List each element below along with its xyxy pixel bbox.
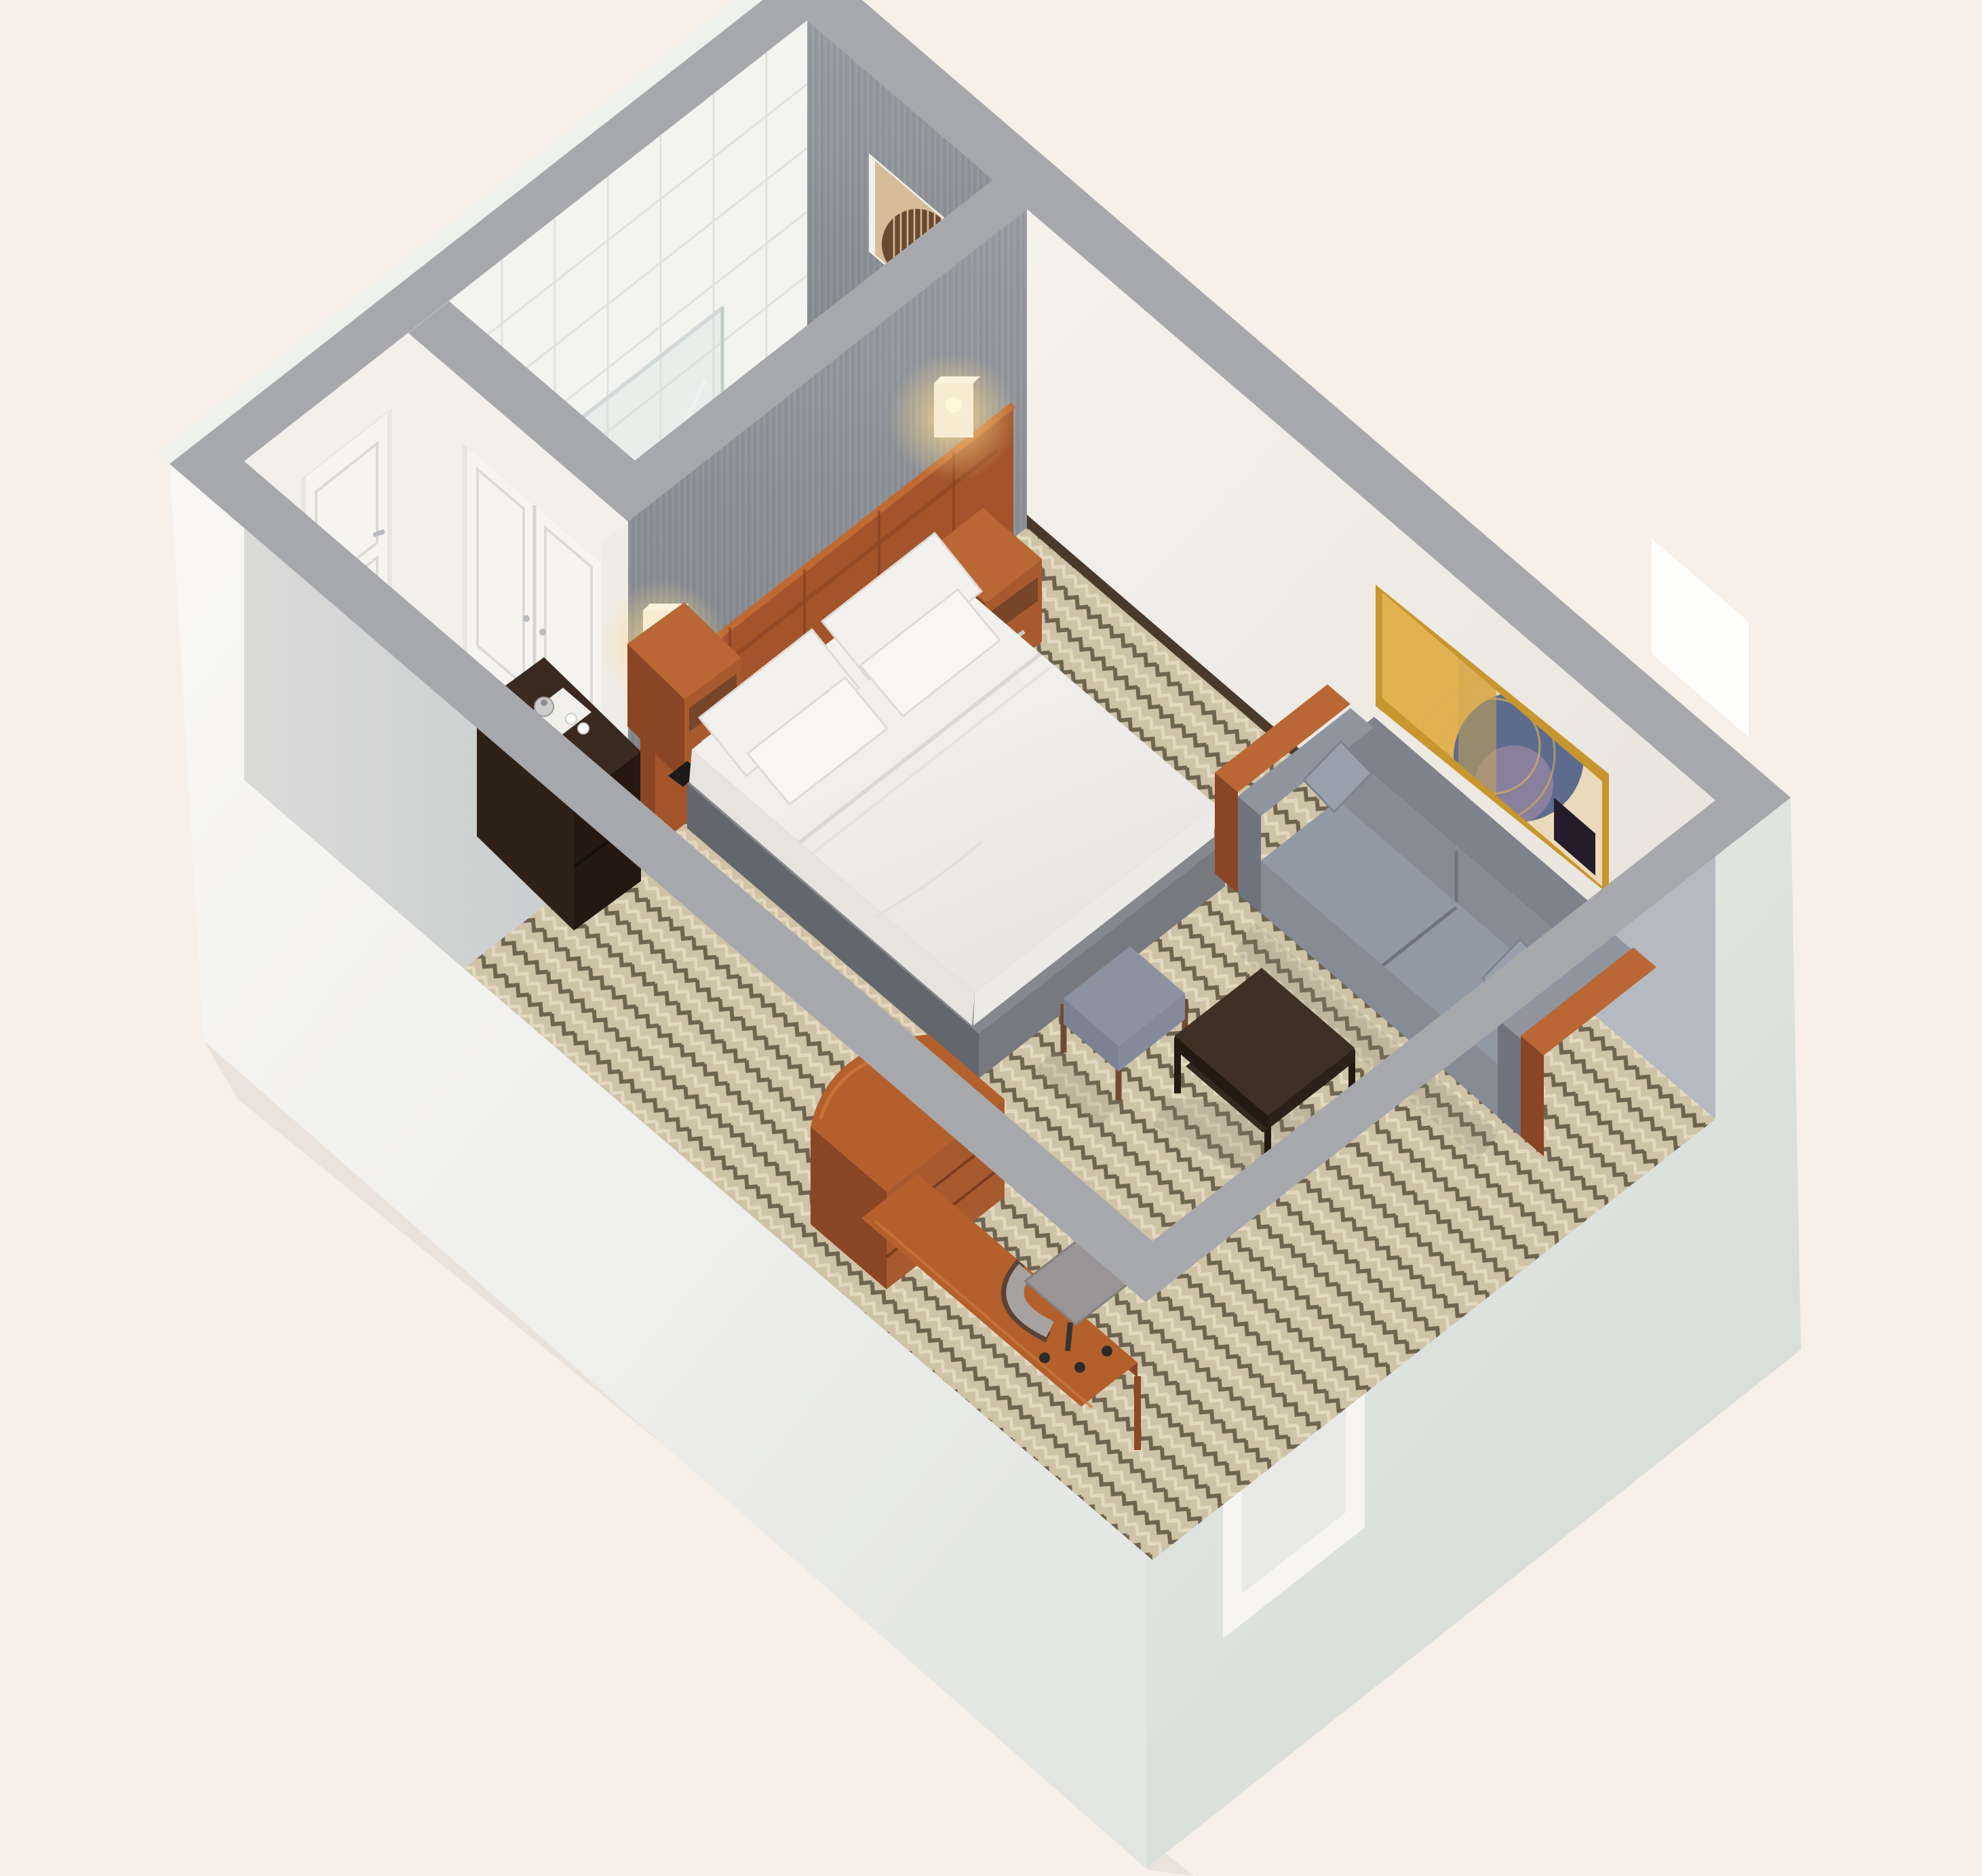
isometric-room-rendering	[0, 0, 1982, 1876]
rendering-canvas	[0, 0, 1982, 1876]
right-wall-lamp	[889, 353, 1017, 482]
